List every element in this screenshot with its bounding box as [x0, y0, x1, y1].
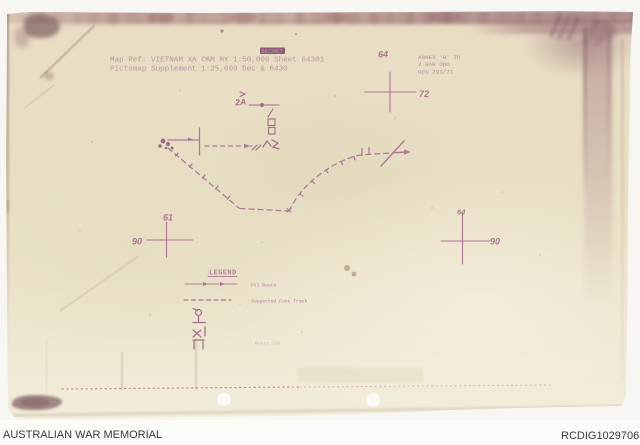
svg-text:72: 72 [419, 89, 429, 99]
svg-text:2A: 2A [234, 96, 247, 107]
svg-text:SECRET: SECRET [261, 49, 284, 55]
svg-text:Ptl Route: Ptl Route [251, 283, 277, 289]
svg-text:90: 90 [490, 237, 500, 247]
svg-text:61: 61 [163, 213, 173, 223]
svg-text:Route 330: Route 330 [255, 341, 281, 347]
svg-text:2 RAR OpO: 2 RAR OpO [418, 61, 450, 68]
svg-text:Map Ref: VIETNAM XA CAM MY 1:5: Map Ref: VIETNAM XA CAM MY 1:50,000 Shee… [110, 57, 325, 65]
svg-text:Suspected Foot Track: Suspected Foot Track [251, 299, 307, 305]
svg-text:Ops 291/71: Ops 291/71 [418, 69, 454, 76]
svg-text:Pictomap Supplement 1:25,000 D: Pictomap Supplement 1:25,000 Dec & 6430 [110, 66, 288, 74]
svg-text:ANNEX 'B' TO: ANNEX 'B' TO [418, 54, 461, 61]
svg-text:64: 64 [378, 50, 388, 60]
svg-text:90: 90 [132, 237, 142, 247]
svg-text:64: 64 [457, 208, 466, 217]
